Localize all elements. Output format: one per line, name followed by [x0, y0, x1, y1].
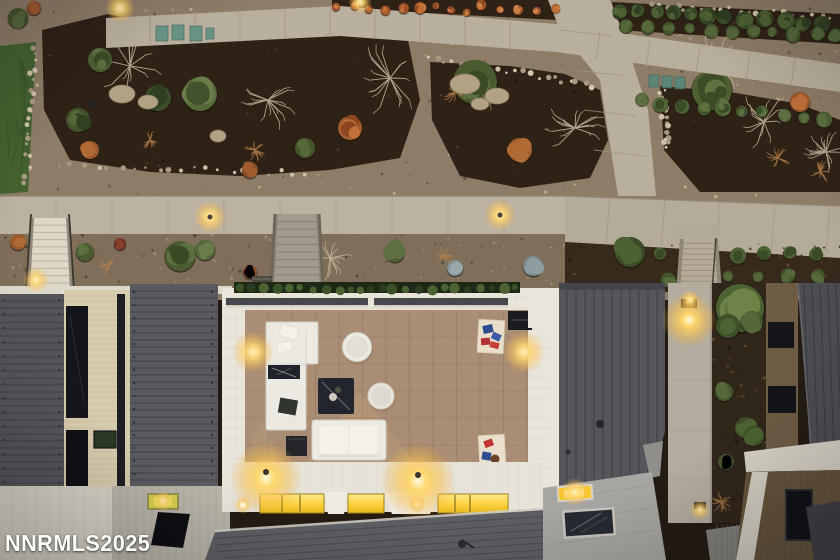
photo-vignette [0, 0, 840, 560]
mls-watermark: NNRMLS2025 [5, 530, 150, 557]
scene-canvas [0, 0, 840, 560]
aerial-photo: NNRMLS2025 [0, 0, 840, 560]
